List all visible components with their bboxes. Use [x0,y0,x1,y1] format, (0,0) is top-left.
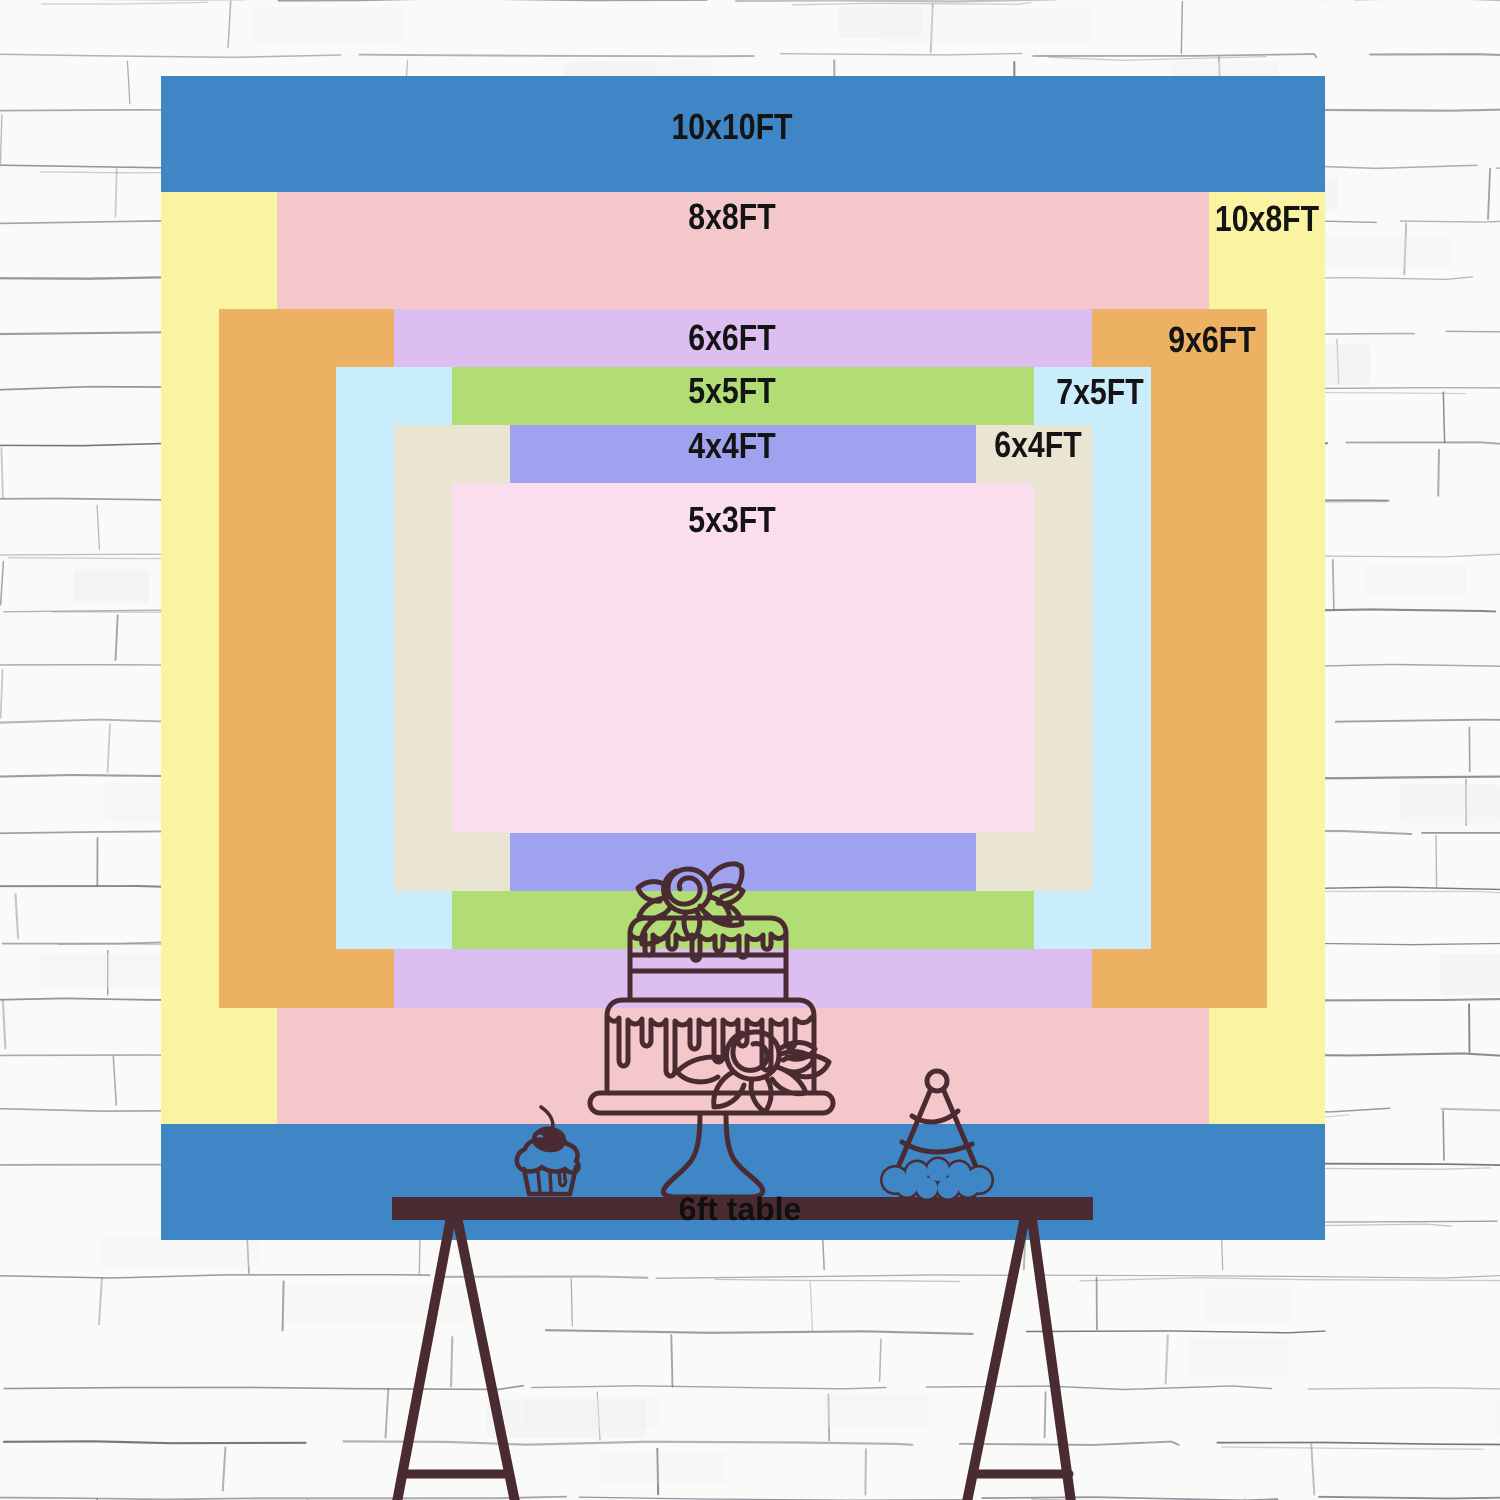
svg-text:6ft table: 6ft table [679,1191,802,1227]
